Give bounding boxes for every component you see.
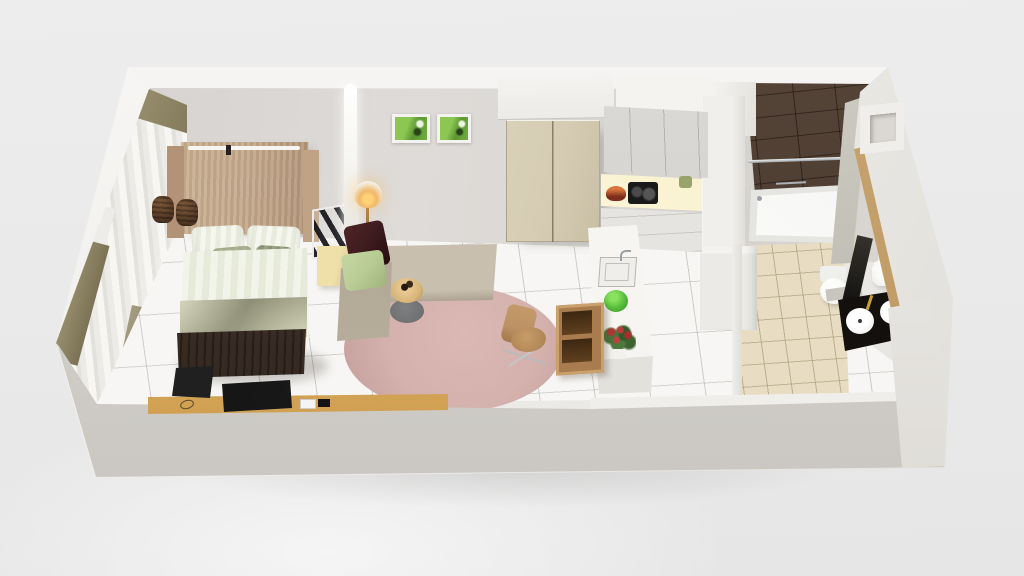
floorplan-render-canvas (0, 0, 1024, 576)
wood-headboard (179, 142, 308, 234)
bulkhead-above-kitchen (616, 76, 712, 112)
desk-white-box (300, 399, 316, 409)
leaf-photo-left (395, 117, 427, 140)
floor-lamp-shade (354, 181, 382, 208)
shelf-opening-bottom (562, 338, 592, 363)
bathroom-low-wall (732, 244, 742, 400)
picture-frame-right (437, 114, 471, 143)
bulkhead-above-wardrobe (498, 75, 614, 120)
cooktop-burners (628, 182, 658, 204)
kitchen-peninsula (700, 246, 757, 330)
cooktop (628, 182, 658, 204)
green-fruit-bowl (604, 290, 628, 312)
red-pot (606, 186, 626, 201)
wall-niche-hole (870, 113, 896, 144)
flower-pot-blooms (606, 326, 632, 346)
headboard-rail (188, 146, 300, 150)
two-door-wardrobe (506, 120, 600, 242)
island-sink-basin (604, 263, 629, 281)
wicker-basket-left (152, 196, 174, 223)
side-table-items (401, 280, 413, 292)
wood-shelf-unit (556, 302, 604, 375)
headboard-rail-knob (226, 145, 231, 155)
light-column (344, 84, 357, 236)
picture-frame-left (392, 114, 430, 143)
bathtub-faucet (757, 196, 762, 201)
island-faucet (620, 250, 631, 261)
desk-black-box (318, 399, 330, 407)
island-sink (598, 257, 637, 287)
pillow-green (341, 249, 388, 291)
sink-drain-left (858, 319, 862, 323)
shelf-opening-top (562, 310, 592, 335)
tall-cabinet-column (702, 96, 745, 252)
green-jar (679, 176, 692, 188)
wicker-basket-right (176, 199, 198, 226)
flower-pot (612, 349, 626, 359)
leaf-photo-right (440, 117, 468, 140)
